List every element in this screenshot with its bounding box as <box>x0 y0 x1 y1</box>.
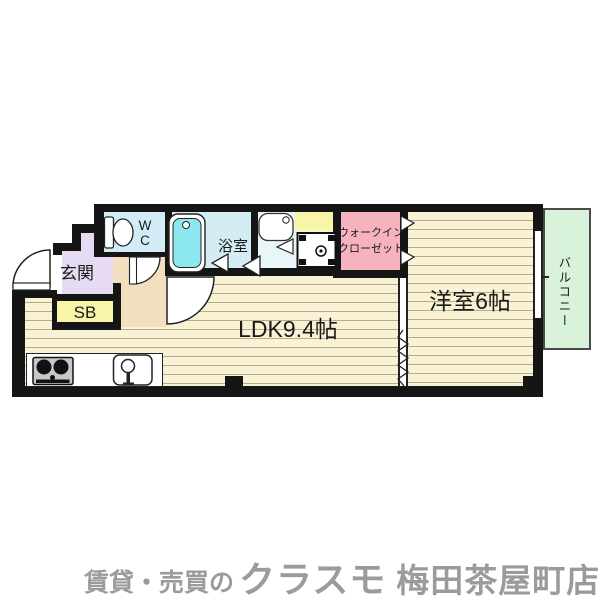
kitchen-counter <box>26 353 163 387</box>
wall-closet-right <box>400 204 408 278</box>
entrance-door-arc <box>13 250 50 290</box>
wall-top <box>94 204 543 212</box>
footer-logo: 賃貸・売買の クラスモ 梅田茶屋町店 <box>84 556 600 598</box>
wall-left <box>12 290 25 397</box>
walk-in-closet-label-line1: ウォークイン <box>338 227 402 240</box>
genkan-label: 玄関 <box>55 264 99 284</box>
floor-plan-image: 玄関 SB WC 浴室 ウォークイン クローゼット LDK9.4帖 洋室6帖 バ… <box>0 0 600 600</box>
ldk-label: LDK9.4帖 <box>213 316 363 342</box>
wall-closet-bottom <box>333 270 408 278</box>
bathroom-label: 浴室 <box>210 238 256 255</box>
wall-bottom <box>12 386 543 397</box>
footer-store-text: 梅田茶屋町店 <box>396 564 600 598</box>
wall-bathroom-bottom <box>165 268 258 276</box>
pillar-bottom-center <box>225 376 243 386</box>
footer-brand-text: クラスモ <box>239 562 386 598</box>
wall-wc-bathroom <box>165 204 172 268</box>
hallway-floor <box>113 257 167 327</box>
shoe-box-label: SB <box>57 303 113 323</box>
wall-shoebox-bottom <box>52 322 121 330</box>
wall-right-top <box>533 204 543 231</box>
walk-in-closet-label-line2: クローゼット <box>338 243 402 256</box>
wall-genkan-bottom <box>52 294 117 301</box>
wall-washroom-bottom <box>251 268 341 276</box>
wall-wc-bottom <box>102 252 166 257</box>
balcony-label: バルコニー <box>556 246 570 338</box>
wc-label: WC <box>137 219 153 248</box>
outside-patch <box>53 225 72 243</box>
wall-step-b-vertical <box>53 243 62 255</box>
wall-bathroom-washroom <box>251 204 258 268</box>
washroom-counter <box>295 212 333 231</box>
walk-in-closet-floor <box>341 212 400 270</box>
wall-genkan-hallway <box>113 283 121 330</box>
western-room-label: 洋室6帖 <box>395 288 545 314</box>
footer-prefix-text: 賃貸・売買の <box>84 571 234 598</box>
wc-floor <box>102 212 166 252</box>
